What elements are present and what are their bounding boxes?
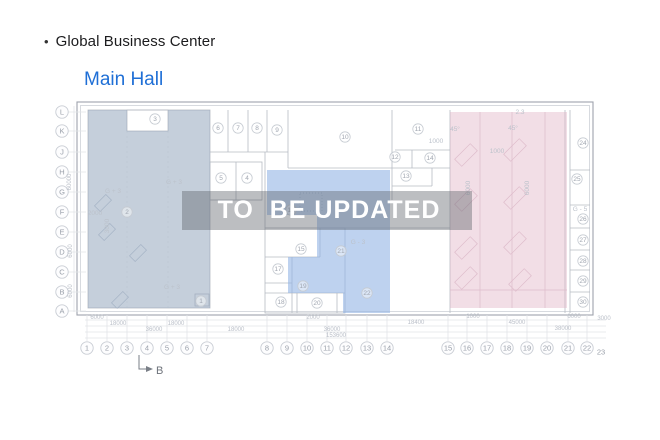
col-label: 17: [483, 343, 491, 352]
room-number: 19: [299, 283, 307, 290]
row-label: F: [60, 207, 65, 216]
dimension-label: 153600: [326, 333, 347, 339]
col-label: 12: [342, 343, 350, 352]
room-number: 29: [579, 278, 587, 285]
room-number: 4: [245, 175, 249, 182]
col-label: 14: [383, 343, 391, 352]
room-number: 3: [153, 116, 157, 123]
room-number: 9: [275, 127, 279, 134]
plan-annotation: 6000: [524, 180, 531, 195]
room-number: 15: [297, 246, 305, 253]
arrow-head-icon: [146, 366, 153, 372]
room-number: 24: [579, 140, 587, 147]
room-number: 11: [415, 126, 422, 133]
col-label: 16: [463, 343, 471, 352]
col-label: 4: [145, 343, 149, 352]
room-number: 22: [363, 290, 371, 297]
room-number: 7: [236, 125, 240, 132]
plan-annotation: 2.3: [515, 109, 524, 116]
plan-annotation: G + 3: [166, 179, 182, 186]
col-label: 20: [543, 343, 551, 352]
col-label: 13: [363, 343, 371, 352]
watermark-band: TO BE UPDATED: [182, 191, 472, 230]
col-label: 18: [503, 343, 511, 352]
col-label: 9: [285, 343, 289, 352]
plan-annotation: 1000: [429, 138, 444, 145]
room-number: 30: [579, 299, 587, 306]
plan-annotation: 1000: [490, 148, 505, 155]
dimension-label-vertical: 6000: [68, 244, 74, 258]
col-label: 11: [323, 343, 331, 352]
dimension-label: 6000: [90, 315, 104, 321]
row-label: G: [59, 187, 65, 196]
row-label: A: [59, 306, 64, 315]
section-arrow-b: B: [139, 355, 163, 377]
col-label: 22: [583, 343, 591, 352]
plan-annotation: G - 5: [573, 206, 588, 213]
room-number: 26: [579, 216, 587, 223]
dimension-label: 3000: [597, 316, 611, 322]
plan-annotation: 2000: [88, 210, 103, 217]
col-label: 1: [85, 343, 89, 352]
col-label: 2: [105, 343, 109, 352]
row-label: J: [60, 147, 64, 156]
plan-annotation: 45°: [450, 125, 460, 133]
plan-annotation: G - 3: [351, 239, 366, 246]
plan-annotation: 3000: [104, 218, 111, 233]
row-label: L: [60, 107, 64, 116]
watermark-text: TO BE UPDATED: [218, 196, 441, 225]
room-number: 1: [199, 298, 203, 305]
room-number: 5: [219, 175, 223, 182]
room-number: 18: [277, 299, 285, 306]
dimension-label: 18400: [408, 320, 425, 326]
dimension-label: 1000: [466, 314, 480, 320]
room-number: 20: [313, 300, 321, 307]
plan-annotation: G + 3: [105, 188, 121, 195]
room-number: 8: [255, 125, 259, 132]
dimension-label: 38000: [555, 326, 572, 332]
row-label: E: [59, 227, 64, 236]
dimension-label-vertical: 6000: [68, 284, 74, 298]
dimension-label: 18000: [110, 321, 127, 327]
row-label: D: [59, 247, 65, 256]
page: • Global Business Center Main Hall: [0, 0, 660, 440]
room-number: 10: [341, 134, 349, 141]
dimension-label: 6000: [567, 314, 581, 320]
col-label: 6: [185, 343, 189, 352]
room-number: 27: [579, 237, 587, 244]
dimension-label-vertical: 60000: [67, 173, 73, 190]
dimension-label: 2000: [306, 315, 320, 321]
col-label: 3: [125, 343, 129, 352]
row-label: H: [59, 167, 64, 176]
col-label: 21: [564, 343, 572, 352]
plan-annotation: 45°: [508, 124, 518, 132]
room-number: 17: [274, 266, 282, 273]
room-number: 14: [426, 155, 434, 162]
col-label: 8: [265, 343, 269, 352]
room-number: 25: [573, 176, 581, 183]
plan-annotation: G + 3: [164, 284, 180, 291]
dimension-label: 18000: [168, 321, 185, 327]
dimension-label: 45000: [509, 320, 526, 326]
col-label: 10: [303, 343, 311, 352]
col-label: 7: [205, 343, 209, 352]
col-label: 5: [165, 343, 169, 352]
room-number: 28: [579, 258, 587, 265]
dimension-label: 18000: [228, 327, 245, 333]
row-label: C: [59, 267, 65, 276]
room-number: 2: [125, 209, 129, 216]
room-number: 12: [391, 154, 399, 161]
room-number: 6: [216, 125, 220, 132]
dimension-label: 36000: [146, 327, 163, 333]
row-label: K: [59, 126, 64, 135]
room-number: 13: [402, 173, 410, 180]
row-label: B: [59, 287, 64, 296]
col-label: 15: [444, 343, 452, 352]
room-number: 21: [337, 248, 345, 255]
col-label: 19: [523, 343, 531, 352]
section-marker-label: B: [156, 365, 163, 377]
col-label: 23: [597, 347, 605, 356]
